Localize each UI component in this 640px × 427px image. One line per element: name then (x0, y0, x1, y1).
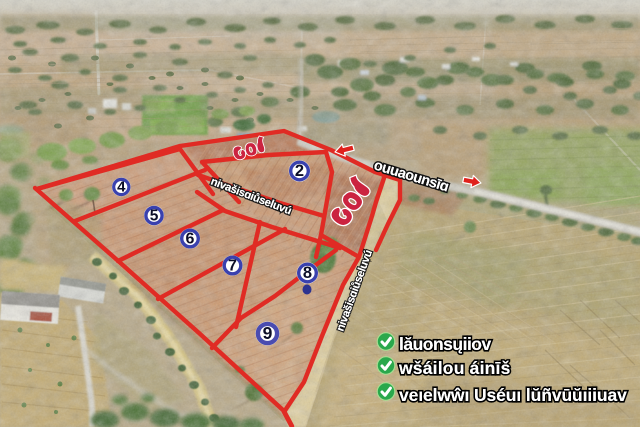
svg-text:5: 5 (150, 207, 159, 224)
svg-text:2: 2 (295, 162, 304, 180)
svg-text:veıelwŵı Uséuı lŭñvūŭıiiuav: veıelwŵı Uséuı lŭñvūŭıiiuav (399, 385, 627, 405)
svg-text:6: 6 (186, 230, 195, 247)
svg-text:lăuonsųiiov: lăuonsųiiov (399, 334, 492, 354)
svg-text:4: 4 (117, 179, 126, 196)
svg-text:wšáilou áinīš: wšáilou áinīš (398, 358, 511, 378)
svg-text:8: 8 (303, 264, 312, 282)
svg-text:9: 9 (263, 323, 273, 343)
svg-text:7: 7 (228, 257, 237, 274)
